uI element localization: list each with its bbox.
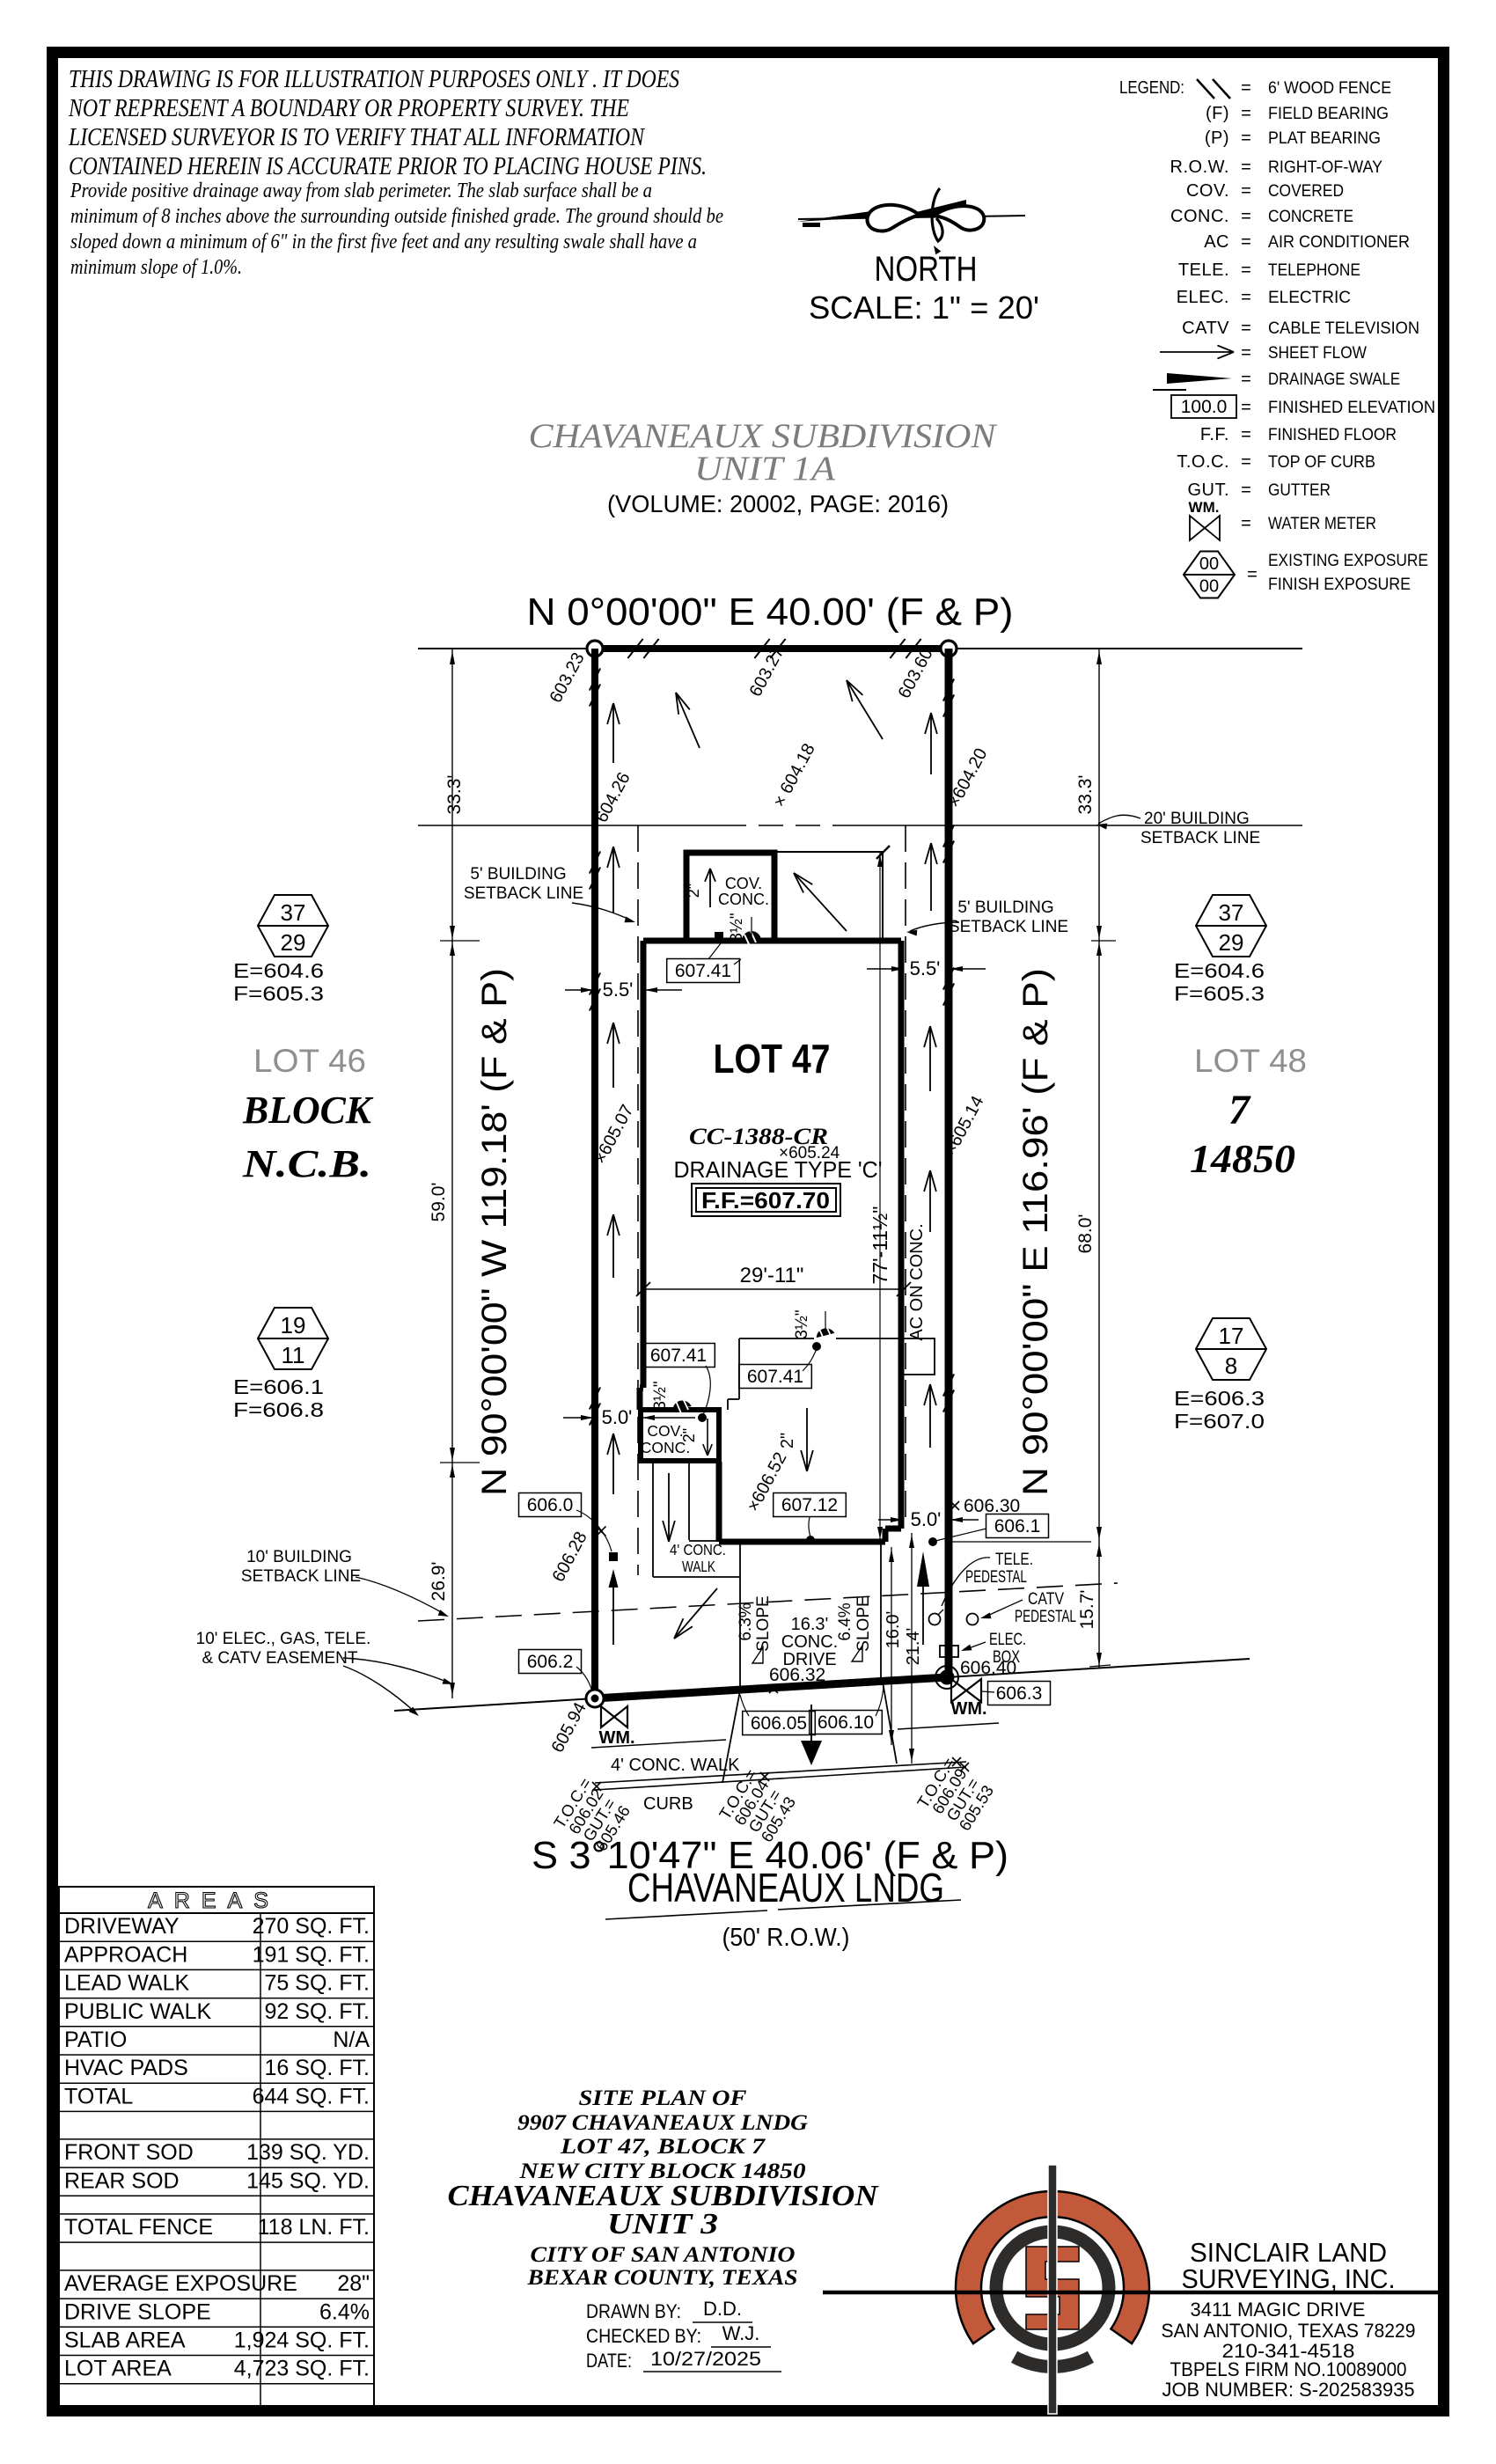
svg-text:606.0: 606.0: [527, 1495, 574, 1515]
svg-text:6' WOOD FENCE: 6' WOOD FENCE: [1268, 78, 1391, 98]
svg-text:SHEET FLOW: SHEET FLOW: [1268, 343, 1368, 363]
svg-text:139 SQ. YD.: 139 SQ. YD.: [246, 2140, 370, 2165]
svg-text:F.F.: F.F.: [1200, 425, 1229, 444]
svg-text:SLOPE: SLOPE: [754, 1595, 773, 1651]
svg-text:33.3': 33.3': [1075, 775, 1096, 815]
svg-text:WM.: WM.: [598, 1728, 634, 1748]
svg-text:606.3: 606.3: [996, 1683, 1043, 1704]
svg-text:10/27/2025: 10/27/2025: [650, 2348, 761, 2370]
svg-text:5.5': 5.5': [910, 957, 941, 979]
svg-text:DRIVEWAY: DRIVEWAY: [64, 1914, 180, 1939]
svg-text:LOT 47: LOT 47: [714, 1036, 831, 1082]
svg-text:4' CONC. WALK: 4' CONC. WALK: [611, 1756, 740, 1775]
svg-text:UNIT 3: UNIT 3: [607, 2208, 718, 2240]
svg-text:2": 2": [778, 1433, 797, 1448]
svg-text:29: 29: [281, 929, 306, 956]
svg-text:N 90°00'00" E 116.96' (F & P): N 90°00'00" E 116.96' (F & P): [1016, 968, 1055, 1496]
svg-text:=: =: [1241, 158, 1251, 177]
svg-text:AC: AC: [1204, 232, 1229, 252]
svg-text:=: =: [1241, 480, 1251, 500]
svg-text:3½": 3½": [651, 1381, 670, 1410]
svg-text:LEAD WALK: LEAD WALK: [64, 1971, 190, 1996]
svg-text:GUT.: GUT.: [1187, 480, 1229, 500]
svg-text:COVERED: COVERED: [1268, 181, 1344, 201]
svg-text:FRONT SOD: FRONT SOD: [64, 2140, 194, 2165]
svg-text:33.3': 33.3': [444, 775, 465, 815]
svg-text:29: 29: [1219, 929, 1244, 956]
svg-text:TELEPHONE: TELEPHONE: [1268, 260, 1360, 280]
svg-text:DRAWN BY:: DRAWN BY:: [586, 2300, 681, 2322]
svg-text:PATIO: PATIO: [64, 2028, 127, 2052]
svg-text:T.O.C.: T.O.C.: [1177, 452, 1229, 472]
svg-text:CONC.: CONC.: [1170, 207, 1229, 226]
svg-text:CATV: CATV: [1028, 1590, 1064, 1609]
svg-text:6.4%: 6.4%: [319, 2299, 370, 2324]
svg-text:SETBACK LINE: SETBACK LINE: [464, 884, 583, 903]
svg-text:=: =: [1241, 260, 1251, 280]
svg-text:8: 8: [1225, 1353, 1237, 1379]
svg-text:17: 17: [1219, 1323, 1244, 1349]
svg-text:LOT 48: LOT 48: [1194, 1043, 1307, 1079]
svg-text:LOT AREA: LOT AREA: [64, 2357, 172, 2381]
svg-text:TELE.: TELE.: [995, 1551, 1033, 1569]
svg-text:=: =: [1241, 343, 1251, 363]
svg-text:JOB NUMBER: S-202583935: JOB NUMBER: S-202583935: [1162, 2379, 1415, 2401]
svg-text:1,924 SQ. FT.: 1,924 SQ. FT.: [234, 2328, 370, 2353]
svg-text:F=606.8: F=606.8: [233, 1398, 324, 1421]
svg-text:COV.: COV.: [647, 1422, 683, 1440]
svg-text:W.J.: W.J.: [722, 2322, 760, 2344]
svg-text:118 LN. FT.: 118 LN. FT.: [258, 2215, 370, 2240]
svg-text:100.0: 100.0: [1181, 397, 1228, 417]
svg-text:SCALE: 1" = 20': SCALE: 1" = 20': [809, 290, 1039, 326]
svg-text:GUTTER: GUTTER: [1268, 480, 1331, 500]
svg-text:PUBLIC WALK: PUBLIC WALK: [64, 1999, 212, 2024]
svg-text:APPROACH: APPROACH: [64, 1942, 187, 1967]
svg-text:4,723 SQ. FT.: 4,723 SQ. FT.: [234, 2357, 370, 2381]
svg-text:3½": 3½": [793, 1309, 811, 1338]
svg-text:TOP OF CURB: TOP OF CURB: [1268, 452, 1375, 472]
svg-text:SURVEYING, INC.: SURVEYING, INC.: [1182, 2263, 1396, 2294]
svg-text:37: 37: [1219, 899, 1244, 926]
svg-text:92 SQ. FT.: 92 SQ. FT.: [265, 1999, 370, 2024]
svg-text:LICENSED SURVEYOR IS TO VERIFY: LICENSED SURVEYOR IS TO VERIFY THAT ALL …: [68, 123, 645, 151]
svg-text:E=606.3: E=606.3: [1174, 1387, 1265, 1410]
svg-text:(F): (F): [1206, 104, 1229, 123]
svg-text:20' BUILDING: 20' BUILDING: [1144, 810, 1250, 828]
svg-text:26.9': 26.9': [429, 1562, 449, 1602]
svg-text:BOX: BOX: [993, 1648, 1020, 1667]
svg-text:=: =: [1241, 514, 1251, 533]
svg-text:19: 19: [281, 1312, 306, 1338]
svg-text:=: =: [1241, 128, 1251, 148]
svg-text:75 SQ. FT.: 75 SQ. FT.: [265, 1971, 370, 1996]
svg-text:=: =: [1241, 319, 1251, 338]
svg-text:=: =: [1247, 565, 1258, 584]
svg-text:00: 00: [1199, 577, 1219, 597]
svg-text:AVERAGE EXPOSURE: AVERAGE EXPOSURE: [64, 2271, 297, 2296]
svg-text:28": 28": [337, 2271, 370, 2296]
svg-text:CURB: CURB: [643, 1794, 693, 1814]
svg-text:5.5': 5.5': [603, 979, 634, 1001]
svg-text:=: =: [1241, 452, 1251, 472]
svg-text:E=604.6: E=604.6: [233, 959, 324, 982]
svg-text:5' BUILDING: 5' BUILDING: [470, 865, 566, 884]
svg-text:CONCRETE: CONCRETE: [1268, 207, 1353, 226]
svg-text:68.0': 68.0': [1075, 1214, 1096, 1254]
svg-text:& CATV EASEMENT: & CATV EASEMENT: [202, 1649, 357, 1668]
svg-text:HVAC PADS: HVAC PADS: [64, 2056, 188, 2080]
svg-text:DATE:: DATE:: [586, 2350, 632, 2372]
svg-text:SLAB AREA: SLAB AREA: [64, 2328, 186, 2353]
svg-text:145 SQ. YD.: 145 SQ. YD.: [246, 2168, 370, 2193]
svg-text:DRIVE: DRIVE: [782, 1650, 836, 1669]
svg-text:77'-11½": 77'-11½": [869, 1206, 891, 1285]
svg-text:DRAINAGE TYPE 'C': DRAINAGE TYPE 'C': [674, 1156, 883, 1183]
svg-text:2": 2": [685, 884, 702, 898]
svg-text:F.F.=607.70: F.F.=607.70: [701, 1187, 830, 1214]
svg-text:607.41: 607.41: [650, 1346, 707, 1366]
svg-text:Provide positive drainage away: Provide positive drainage away from slab…: [70, 180, 652, 202]
svg-text:606.10: 606.10: [818, 1712, 874, 1733]
svg-text:RIGHT-OF-WAY: RIGHT-OF-WAY: [1268, 158, 1382, 177]
svg-text:PEDESTAL: PEDESTAL: [965, 1568, 1027, 1587]
svg-text:3411 MAGIC DRIVE: 3411 MAGIC DRIVE: [1191, 2299, 1366, 2321]
svg-text:F=607.0: F=607.0: [1174, 1410, 1265, 1433]
svg-text:minimum of 8 inches above the: minimum of 8 inches above the surroundin…: [70, 205, 723, 228]
svg-text:WATER METER: WATER METER: [1268, 514, 1376, 533]
svg-text:F=605.3: F=605.3: [1174, 982, 1265, 1005]
svg-text:606.1: 606.1: [994, 1516, 1041, 1536]
svg-text:SETBACK LINE: SETBACK LINE: [241, 1567, 361, 1586]
svg-text:3½": 3½": [728, 913, 746, 942]
svg-text:PLAT BEARING: PLAT BEARING: [1268, 128, 1381, 148]
svg-text:191 SQ. FT.: 191 SQ. FT.: [253, 1942, 370, 1967]
svg-text:2": 2": [680, 1428, 698, 1442]
svg-text:F=605.3: F=605.3: [233, 982, 324, 1005]
svg-text:THIS DRAWING IS FOR ILLUSTRATI: THIS DRAWING IS FOR ILLUSTRATION PURPOSE…: [69, 65, 679, 93]
svg-text:644 SQ. FT.: 644 SQ. FT.: [253, 2084, 370, 2108]
svg-text:607.12: 607.12: [781, 1495, 838, 1515]
svg-text:FINISHED FLOOR: FINISHED FLOOR: [1268, 425, 1397, 444]
svg-text:SLOPE: SLOPE: [854, 1595, 873, 1651]
svg-text:WALK: WALK: [682, 1558, 715, 1575]
svg-text:AIR CONDITIONER: AIR CONDITIONER: [1268, 232, 1410, 252]
svg-text:16.0': 16.0': [884, 1611, 903, 1649]
svg-text:WM.: WM.: [950, 1699, 986, 1719]
svg-text:NORTH: NORTH: [875, 250, 978, 289]
svg-text:LEGEND:: LEGEND:: [1119, 78, 1184, 98]
svg-text:5.0': 5.0': [602, 1406, 633, 1428]
svg-text:BEXAR COUNTY, TEXAS: BEXAR COUNTY, TEXAS: [526, 2266, 797, 2290]
svg-text:N.C.B.: N.C.B.: [242, 1142, 371, 1185]
svg-text:607.41: 607.41: [675, 961, 731, 981]
svg-text:CONC.: CONC.: [718, 891, 769, 908]
svg-text:5.0': 5.0': [911, 1508, 942, 1530]
svg-text:WM.: WM.: [1189, 499, 1220, 516]
svg-text:15.7': 15.7': [1077, 1590, 1097, 1630]
svg-text:=: =: [1241, 181, 1251, 201]
svg-text:COV.: COV.: [1186, 181, 1229, 201]
svg-text:LOT 47, BLOCK 7: LOT 47, BLOCK 7: [560, 2135, 766, 2159]
svg-text:E=606.1: E=606.1: [233, 1375, 324, 1398]
svg-text:=: =: [1241, 288, 1251, 307]
svg-text:6.4%: 6.4%: [836, 1602, 854, 1640]
svg-text:UNIT 1A: UNIT 1A: [694, 450, 835, 488]
svg-text:ELEC.: ELEC.: [1177, 288, 1229, 307]
svg-text:ELECTRIC: ELECTRIC: [1268, 288, 1351, 307]
svg-text:16.3': 16.3': [791, 1615, 829, 1634]
svg-text:11: 11: [282, 1342, 305, 1368]
svg-text:NOT REPRESENT A BOUNDARY OR PR: NOT REPRESENT A BOUNDARY OR PROPERTY SUR…: [68, 94, 629, 122]
svg-text:00: 00: [1199, 554, 1219, 574]
svg-text:(VOLUME: 20002, PAGE: 2016): (VOLUME: 20002, PAGE: 2016): [607, 490, 949, 517]
svg-text:=: =: [1241, 398, 1251, 417]
svg-text:=: =: [1241, 425, 1251, 444]
svg-text:ELEC.: ELEC.: [989, 1631, 1026, 1649]
svg-text:TOTAL FENCE: TOTAL FENCE: [64, 2215, 213, 2240]
svg-text:9907 CHAVANEAUX LNDG: 9907 CHAVANEAUX LNDG: [517, 2111, 808, 2135]
svg-text:FINISH EXPOSURE: FINISH EXPOSURE: [1268, 575, 1411, 594]
svg-text:606.30: 606.30: [964, 1496, 1020, 1516]
svg-text:sloped down a minimum of 6" in: sloped down a minimum of 6" in the first…: [70, 231, 697, 253]
svg-text:=: =: [1241, 232, 1251, 252]
svg-text:10' BUILDING: 10' BUILDING: [246, 1548, 352, 1566]
svg-text:SITE PLAN OF: SITE PLAN OF: [579, 2086, 747, 2110]
svg-text:COV.: COV.: [725, 875, 762, 892]
svg-text:CONC.: CONC.: [781, 1632, 838, 1652]
svg-text:6.3%: 6.3%: [737, 1602, 755, 1640]
svg-text:CHECKED BY:: CHECKED BY:: [586, 2325, 701, 2347]
svg-text:4' CONC.: 4' CONC.: [670, 1541, 726, 1558]
svg-text:5' BUILDING: 5' BUILDING: [957, 898, 1053, 917]
svg-text:=: =: [1241, 104, 1251, 123]
svg-text:SAN ANTONIO, TEXAS 78229: SAN ANTONIO, TEXAS 78229: [1162, 2320, 1416, 2342]
svg-text:N/A: N/A: [333, 2028, 370, 2052]
svg-text:=: =: [1241, 78, 1251, 98]
svg-text:N 0°00'00" E 40.00' (F & P): N 0°00'00" E 40.00' (F & P): [527, 590, 1014, 634]
svg-text:606.05: 606.05: [751, 1713, 807, 1734]
svg-text:CABLE TELEVISION: CABLE TELEVISION: [1268, 319, 1419, 338]
svg-text:N 90°00'00" W 119.18' (F & P): N 90°00'00" W 119.18' (F & P): [475, 968, 514, 1496]
svg-text:TELE.: TELE.: [1178, 260, 1229, 280]
svg-text:E=604.6: E=604.6: [1174, 959, 1265, 982]
svg-text:D.D.: D.D.: [703, 2298, 742, 2320]
svg-text:DRIVE SLOPE: DRIVE SLOPE: [64, 2299, 211, 2324]
svg-text:606.2: 606.2: [527, 1652, 574, 1672]
svg-text:29'-11": 29'-11": [740, 1264, 804, 1287]
svg-text:FIELD BEARING: FIELD BEARING: [1268, 104, 1389, 123]
svg-text:21.4': 21.4': [904, 1628, 923, 1666]
svg-text:BLOCK: BLOCK: [242, 1089, 374, 1132]
svg-text:CATV: CATV: [1182, 319, 1229, 338]
svg-text:=: =: [1241, 207, 1251, 226]
svg-text:TBPELS FIRM NO.10089000: TBPELS FIRM NO.10089000: [1170, 2358, 1407, 2380]
svg-text:270 SQ. FT.: 270 SQ. FT.: [253, 1914, 370, 1939]
svg-text:EXISTING EXPOSURE: EXISTING EXPOSURE: [1268, 551, 1428, 570]
svg-text:14850: 14850: [1190, 1136, 1295, 1181]
svg-text:LOT 46: LOT 46: [253, 1043, 366, 1079]
svg-text:59.0': 59.0': [429, 1183, 449, 1222]
svg-text:SETBACK LINE: SETBACK LINE: [949, 918, 1068, 936]
svg-text:CITY OF SAN ANTONIO: CITY OF SAN ANTONIO: [531, 2243, 796, 2267]
svg-text:R.O.W.: R.O.W.: [1170, 158, 1229, 177]
svg-text:minimum slope of 1.0%.: minimum slope of 1.0%.: [70, 256, 242, 279]
svg-text:(50' R.O.W.): (50' R.O.W.): [722, 1924, 850, 1952]
svg-text:=: =: [1241, 370, 1251, 389]
svg-text:37: 37: [281, 899, 306, 926]
svg-text:FINISHED ELEVATION: FINISHED ELEVATION: [1268, 398, 1435, 417]
svg-text:PEDESTAL: PEDESTAL: [1015, 1608, 1076, 1626]
svg-text:SETBACK LINE: SETBACK LINE: [1140, 829, 1260, 847]
svg-text:7: 7: [1228, 1087, 1251, 1133]
svg-text:10' ELEC., GAS, TELE.: 10' ELEC., GAS, TELE.: [196, 1630, 371, 1648]
svg-text:16 SQ. FT.: 16 SQ. FT.: [265, 2056, 370, 2080]
svg-text:DRAINAGE SWALE: DRAINAGE SWALE: [1268, 370, 1400, 389]
svg-text:TOTAL: TOTAL: [64, 2084, 133, 2108]
svg-text:AREAS: AREAS: [148, 1888, 280, 1913]
svg-text:CONTAINED HEREIN IS ACCURATE P: CONTAINED HEREIN IS ACCURATE PRIOR TO PL…: [69, 152, 707, 180]
svg-text:(P): (P): [1205, 128, 1229, 148]
svg-text:REAR SOD: REAR SOD: [64, 2168, 180, 2193]
svg-text:607.41: 607.41: [747, 1367, 803, 1387]
